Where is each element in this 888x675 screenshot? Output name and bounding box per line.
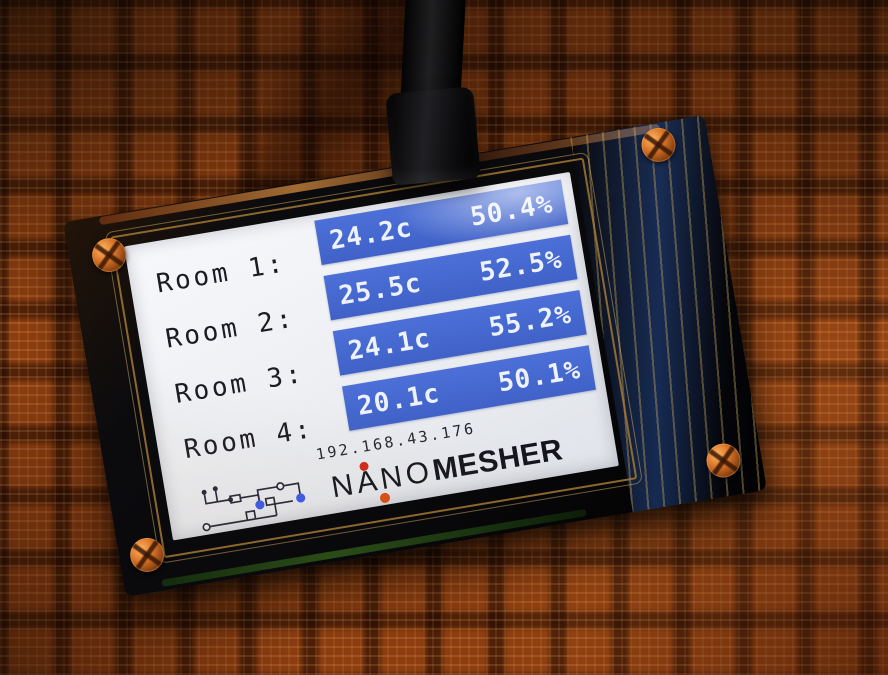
logo-dot-orange	[379, 492, 391, 504]
temp-value: 24.2c	[327, 212, 414, 255]
humidity-value: 50.1%	[496, 355, 583, 398]
humidity-value: 50.4%	[468, 189, 555, 232]
usb-cable-connector	[385, 86, 481, 185]
temp-value: 24.1c	[346, 323, 433, 366]
humidity-value: 52.5%	[477, 244, 564, 287]
humidity-value: 55.2%	[487, 299, 574, 342]
phillips-screw-icon	[90, 236, 129, 275]
temp-value: 25.5c	[337, 268, 424, 311]
phillips-screw-icon	[128, 535, 167, 574]
photo-canvas: { "screen": { "rooms": [ { "label": "Roo…	[0, 0, 888, 675]
temp-value: 20.1c	[355, 378, 442, 421]
lcd-screen: Room 1: 24.2c 50.4% Room 2: 25.5c 52.5% …	[124, 172, 619, 541]
